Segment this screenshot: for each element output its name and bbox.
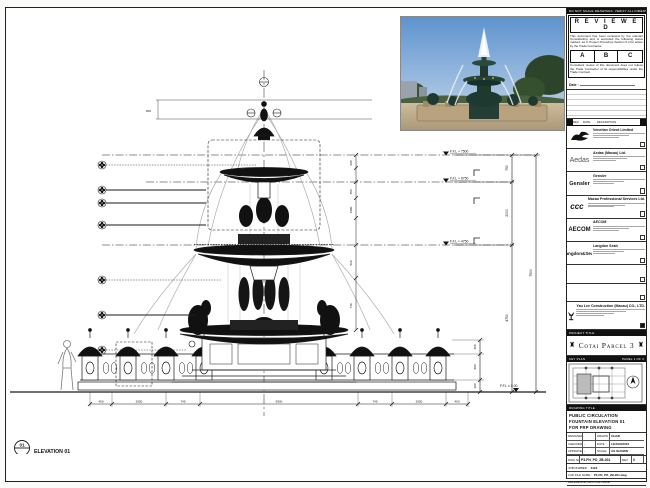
level-label-7500: F.F.L + 7500 bbox=[450, 150, 469, 154]
revision-col-date: DATE bbox=[583, 120, 597, 124]
consultant-aedas: Aedas Aedas (Macau) Ltd. bbox=[567, 149, 646, 172]
cad-file-row: CAD FILE NAME : P3-FN_PD_2B-001.dwg bbox=[567, 472, 646, 479]
svg-text:520: 520 bbox=[349, 260, 353, 265]
svg-text:740: 740 bbox=[349, 303, 353, 308]
spare-consultant-box-2 bbox=[567, 284, 646, 302]
job-number-row: JOB NUMBER : 3123 bbox=[567, 464, 646, 471]
drawing-title-line3: FOR FRP DRAWING bbox=[569, 425, 644, 431]
spare-checkbox[interactable] bbox=[640, 277, 646, 283]
consultant-address bbox=[588, 203, 645, 208]
aedas-logo: Aedas bbox=[567, 149, 592, 171]
svg-text:450: 450 bbox=[98, 399, 103, 403]
date-label: Date : bbox=[569, 83, 579, 87]
dwg-no-value: P3-FN_PD_2B-001 bbox=[580, 456, 621, 463]
svg-text:2050: 2050 bbox=[136, 399, 143, 403]
svg-text:450: 450 bbox=[454, 399, 459, 403]
photo-graphic bbox=[401, 17, 564, 130]
key-plan-label: KEY PLAN bbox=[569, 357, 585, 361]
svg-text:2050: 2050 bbox=[416, 399, 423, 403]
svg-text:450: 450 bbox=[473, 344, 477, 349]
grade-b: B bbox=[595, 51, 619, 62]
gensler-logo: Gensler bbox=[567, 172, 592, 194]
contractor-address bbox=[576, 309, 645, 315]
title-block: DO NOT SCALE DRAWINGS. VERIFY ALL DIMENS… bbox=[567, 8, 646, 479]
designed-value bbox=[583, 433, 596, 440]
svg-text:600: 600 bbox=[146, 109, 151, 113]
langdon-seah-logo: Langdon&Seah bbox=[567, 242, 592, 264]
spare-checkbox[interactable] bbox=[640, 295, 646, 301]
consultant-checkbox[interactable] bbox=[640, 235, 646, 241]
contractor-checkbox[interactable] bbox=[640, 323, 646, 329]
consultant-aecom: AECOM AECOM bbox=[567, 219, 646, 242]
reviewed-title: R E V I E W E D bbox=[570, 17, 643, 33]
date-value: 12/JAN/2016 bbox=[610, 441, 644, 448]
project-name: Cotai Parcel 3 bbox=[575, 341, 637, 350]
ccc-logo: ccc bbox=[567, 196, 587, 218]
consultant-checkbox[interactable] bbox=[640, 188, 646, 194]
drawing-labels: F.F.L + 7500 F.F.L + 6750 F.F.L + 4750 F… bbox=[19, 109, 533, 454]
svg-text:2000: 2000 bbox=[505, 209, 509, 217]
consultant-checkbox[interactable] bbox=[640, 165, 646, 171]
svg-text:450: 450 bbox=[349, 189, 353, 194]
svg-text:300: 300 bbox=[473, 383, 477, 388]
key-plan-panel: PANEL 1 OF 3 bbox=[622, 357, 644, 361]
top-note: DO NOT SCALE DRAWINGS. VERIFY ALL DIMENS… bbox=[567, 8, 646, 14]
consultant-address bbox=[593, 179, 645, 184]
key-plan-map bbox=[567, 362, 646, 405]
consultant-checkbox[interactable] bbox=[640, 211, 646, 217]
consultant-macau-professional: ccc Macau Professional Services Ltd. bbox=[567, 196, 646, 219]
reference-dwg-label: REFERENCE DWG FILE NAME : bbox=[568, 480, 611, 484]
fountain-reference-photo bbox=[400, 16, 565, 131]
revision-table bbox=[567, 90, 646, 119]
svg-text:750: 750 bbox=[505, 165, 509, 171]
stamp-body-2: Consultant review of this document does … bbox=[570, 64, 643, 74]
grade-c: C bbox=[618, 51, 642, 62]
stamp-body-1: This document has been reviewed by the r… bbox=[570, 35, 643, 49]
project-title-box: ♜ Cotai Parcel 3 ♜ bbox=[567, 336, 646, 356]
consultant-name: Langdon Seah bbox=[593, 244, 645, 248]
dwg-no-row: DWG NO. P3-FN_PD_2B-001 REV 0 bbox=[567, 456, 646, 464]
drawn-value: CHAD bbox=[610, 433, 644, 440]
svg-text:745: 745 bbox=[180, 399, 185, 403]
contractor-name: Yau Lee Construction (Macau) CO., LTD. bbox=[576, 304, 645, 308]
consultant-name: Macau Professional Services Ltd. bbox=[588, 197, 645, 201]
consultant-name: AECOM bbox=[593, 220, 645, 224]
consultant-checkbox[interactable] bbox=[640, 258, 646, 264]
svg-text:1980: 1980 bbox=[349, 206, 353, 213]
info-table: DESIGNED DRAWN CHAD CHECKED - DATE 12/JA… bbox=[567, 433, 646, 456]
date-blank-line[interactable] bbox=[580, 81, 635, 86]
yau-lee-logo-icon bbox=[567, 302, 575, 329]
aecom-logo: AECOM bbox=[567, 219, 592, 241]
grade-a: A bbox=[571, 51, 595, 62]
winged-lion-icon bbox=[567, 126, 592, 148]
consultant-venetian: Venetian Orient Limited bbox=[567, 126, 646, 149]
consultant-name: Aedas (Macau) Ltd. bbox=[593, 151, 645, 155]
elevation-title: ELEVATION 01 bbox=[34, 449, 70, 454]
cad-file-value: P3-FN_PD_2B-001.dwg bbox=[594, 473, 627, 477]
scale-label: SCALE bbox=[596, 448, 610, 455]
job-number-value: 3123 bbox=[591, 466, 598, 470]
job-number-label: JOB NUMBER : bbox=[568, 466, 589, 470]
svg-text:4750: 4750 bbox=[505, 314, 509, 322]
revision-header-block-right bbox=[640, 119, 646, 125]
consultant-checkbox[interactable] bbox=[640, 142, 646, 148]
drawing-title-box: PUBLIC CIRCULATION FOUNTAIN ELEVATION 01… bbox=[567, 411, 646, 433]
date-label: DATE bbox=[596, 441, 610, 448]
approved-label: APPROVED bbox=[567, 448, 583, 455]
svg-text:5900: 5900 bbox=[276, 399, 283, 403]
consultant-name: Venetian Orient Limited bbox=[593, 128, 645, 132]
consultant-address bbox=[593, 249, 645, 254]
right-dimension-chains bbox=[443, 152, 540, 395]
stamp-date-row: Date : bbox=[567, 79, 646, 90]
checked-label: CHECKED bbox=[567, 441, 583, 448]
approved-value: - bbox=[583, 448, 596, 455]
revision-col-description: DESCRIPTION bbox=[597, 120, 640, 124]
consultant-address bbox=[593, 156, 645, 161]
cad-file-label: CAD FILE NAME : bbox=[568, 473, 592, 477]
svg-text:800: 800 bbox=[473, 364, 477, 369]
level-label-4750: F.F.L + 4750 bbox=[450, 240, 469, 244]
dwg-no-label: DWG NO. bbox=[567, 456, 580, 463]
inner-dimension-chain bbox=[354, 153, 358, 332]
elevation-number: 01 bbox=[19, 443, 25, 448]
level-label-6750: F.F.L + 6750 bbox=[450, 177, 469, 181]
consultant-address bbox=[593, 226, 645, 231]
key-plan-graphic bbox=[567, 362, 644, 404]
consultant-gensler: Gensler Gensler bbox=[567, 172, 646, 195]
consultant-address bbox=[593, 133, 645, 138]
spare-consultant-box-1 bbox=[567, 265, 646, 284]
reviewed-stamp: R E V I E W E D This document has been r… bbox=[568, 15, 645, 78]
human-scale-figure bbox=[58, 341, 76, 391]
svg-text:690: 690 bbox=[349, 160, 353, 165]
designed-label: DESIGNED bbox=[567, 433, 583, 440]
scale-value: AS SHOWN bbox=[610, 448, 644, 455]
rev-label: REV bbox=[621, 456, 632, 463]
drawn-label: DRAWN bbox=[596, 433, 610, 440]
checked-value: - bbox=[583, 441, 596, 448]
ornament-right-icon: ♜ bbox=[638, 342, 644, 349]
contractor-yau-lee: Yau Lee Construction (Macau) CO., LTD. bbox=[567, 302, 646, 330]
revision-header: REV DATE DESCRIPTION bbox=[567, 119, 646, 126]
consultant-name: Gensler bbox=[593, 174, 645, 178]
revision-col-rev: REV bbox=[573, 120, 583, 124]
svg-text:745: 745 bbox=[372, 399, 377, 403]
reference-dwg-row: REFERENCE DWG FILE NAME : bbox=[567, 479, 646, 486]
rev-value: 0 bbox=[632, 456, 644, 463]
elevation-callout bbox=[15, 441, 553, 455]
stamp-grades: A B C bbox=[570, 50, 643, 63]
consultant-langdon-seah: Langdon&Seah Langdon Seah bbox=[567, 242, 646, 265]
level-label-0: F.F.L ± 0.00 bbox=[500, 384, 517, 388]
svg-text:7500: 7500 bbox=[529, 269, 533, 277]
